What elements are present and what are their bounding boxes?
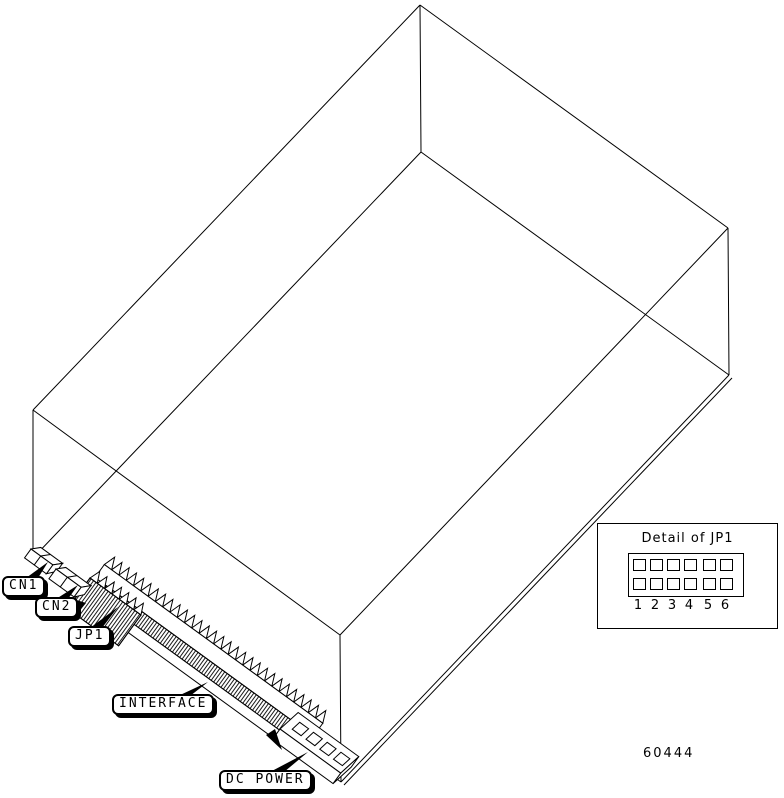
callout-cn2: CN2 [35,597,78,618]
inset-title: Detail of JP1 [598,531,777,546]
pin-number: 3 [668,598,676,613]
jp1-detail-inset: Detail of JP1 1 2 3 4 5 6 [597,523,778,629]
jumper-pin [703,559,716,571]
chassis-wireframe [33,5,732,785]
pin-number: 4 [685,598,693,613]
jumper-pin [633,559,646,571]
jumper-pin [633,578,646,590]
callout-cn1-label: CN1 [9,578,38,593]
jumper-pin [667,578,680,590]
jumper-pin [684,578,697,590]
pin-number: 5 [704,598,712,613]
jumper-pin [650,578,663,590]
callout-jp1-label: JP1 [75,628,104,643]
jumper-pin [684,559,697,571]
callout-cn2-label: CN2 [42,599,71,614]
jumper-pin [720,578,733,590]
figure-number: 60444 [643,746,694,761]
callout-dc-power-label: DC POWER [226,772,305,787]
callout-jp1: JP1 [68,626,111,647]
drive-isometric-drawing [0,0,784,798]
jumper-pin [703,578,716,590]
callout-interface-label: INTERFACE [119,696,207,711]
pin-number: 1 [634,598,642,613]
callout-interface: INTERFACE [112,694,214,715]
pin-number: 6 [721,598,729,613]
figure-page: { "figure": { "id_number": "60444", "lin… [0,0,784,798]
jumper-pin [720,559,733,571]
jumper-pin-block [628,553,744,597]
callout-cn1: CN1 [2,576,45,597]
pin-number: 2 [651,598,659,613]
jumper-pin [650,559,663,571]
jumper-pin [667,559,680,571]
callout-dc-power: DC POWER [219,770,312,791]
